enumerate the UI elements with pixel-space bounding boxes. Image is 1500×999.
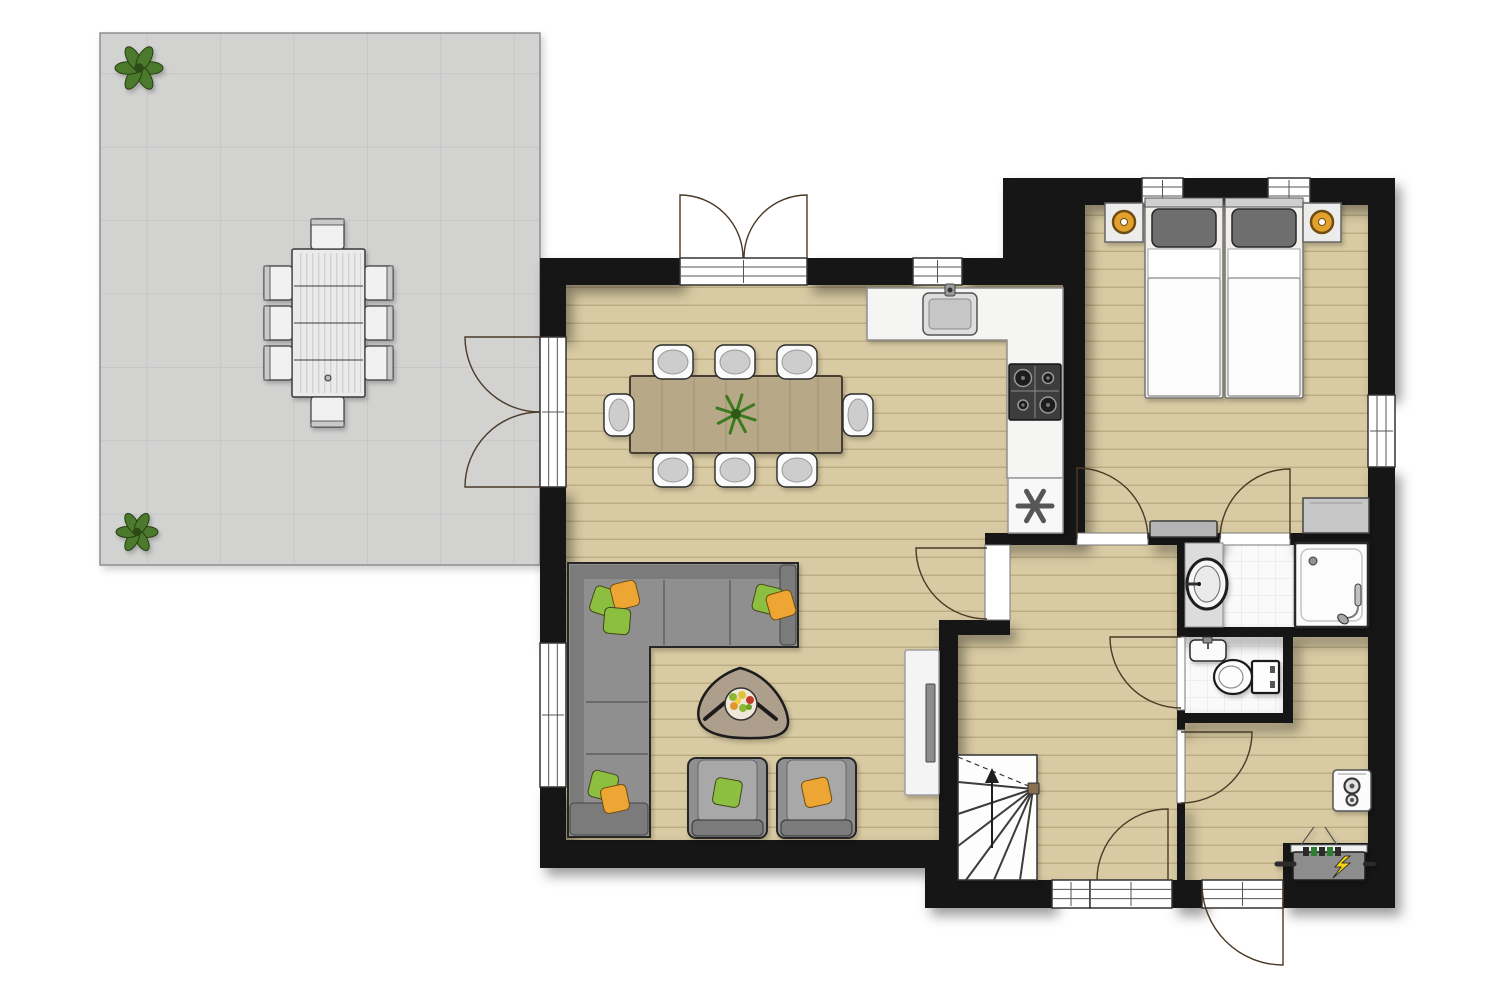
tv-sideboard	[905, 650, 939, 795]
nightstand-right-with-lamp	[1303, 203, 1341, 242]
armchair-right	[777, 758, 856, 838]
dining-table	[630, 376, 842, 453]
bed-left	[1145, 198, 1223, 398]
shower	[1295, 543, 1368, 627]
window-living-left	[540, 643, 566, 787]
kitchen-fridge-freezer	[1008, 478, 1063, 533]
staircase	[958, 755, 1039, 880]
bedroom-dresser	[1303, 498, 1369, 533]
boiler	[1333, 770, 1371, 811]
armchair-left	[688, 758, 767, 838]
bathroom-vanity-basin	[1185, 543, 1227, 627]
kitchen-stove	[1009, 364, 1061, 420]
floor-plan	[0, 0, 1500, 999]
nightstand-left-with-lamp	[1105, 203, 1143, 242]
bed-right	[1225, 198, 1303, 398]
window-kitchen-top	[913, 258, 962, 285]
french-door-garden-top	[680, 195, 807, 285]
floor-plan-drawing	[0, 0, 1500, 999]
window-bedroom-right	[1368, 395, 1395, 467]
toilet	[1214, 660, 1279, 694]
entrance-door	[1202, 880, 1283, 965]
toilet-hand-basin	[1190, 637, 1226, 661]
outdoor-dining-table	[292, 249, 365, 397]
window-hall-sidelight	[1052, 880, 1090, 908]
bedroom-wall-shelf	[1150, 521, 1217, 537]
